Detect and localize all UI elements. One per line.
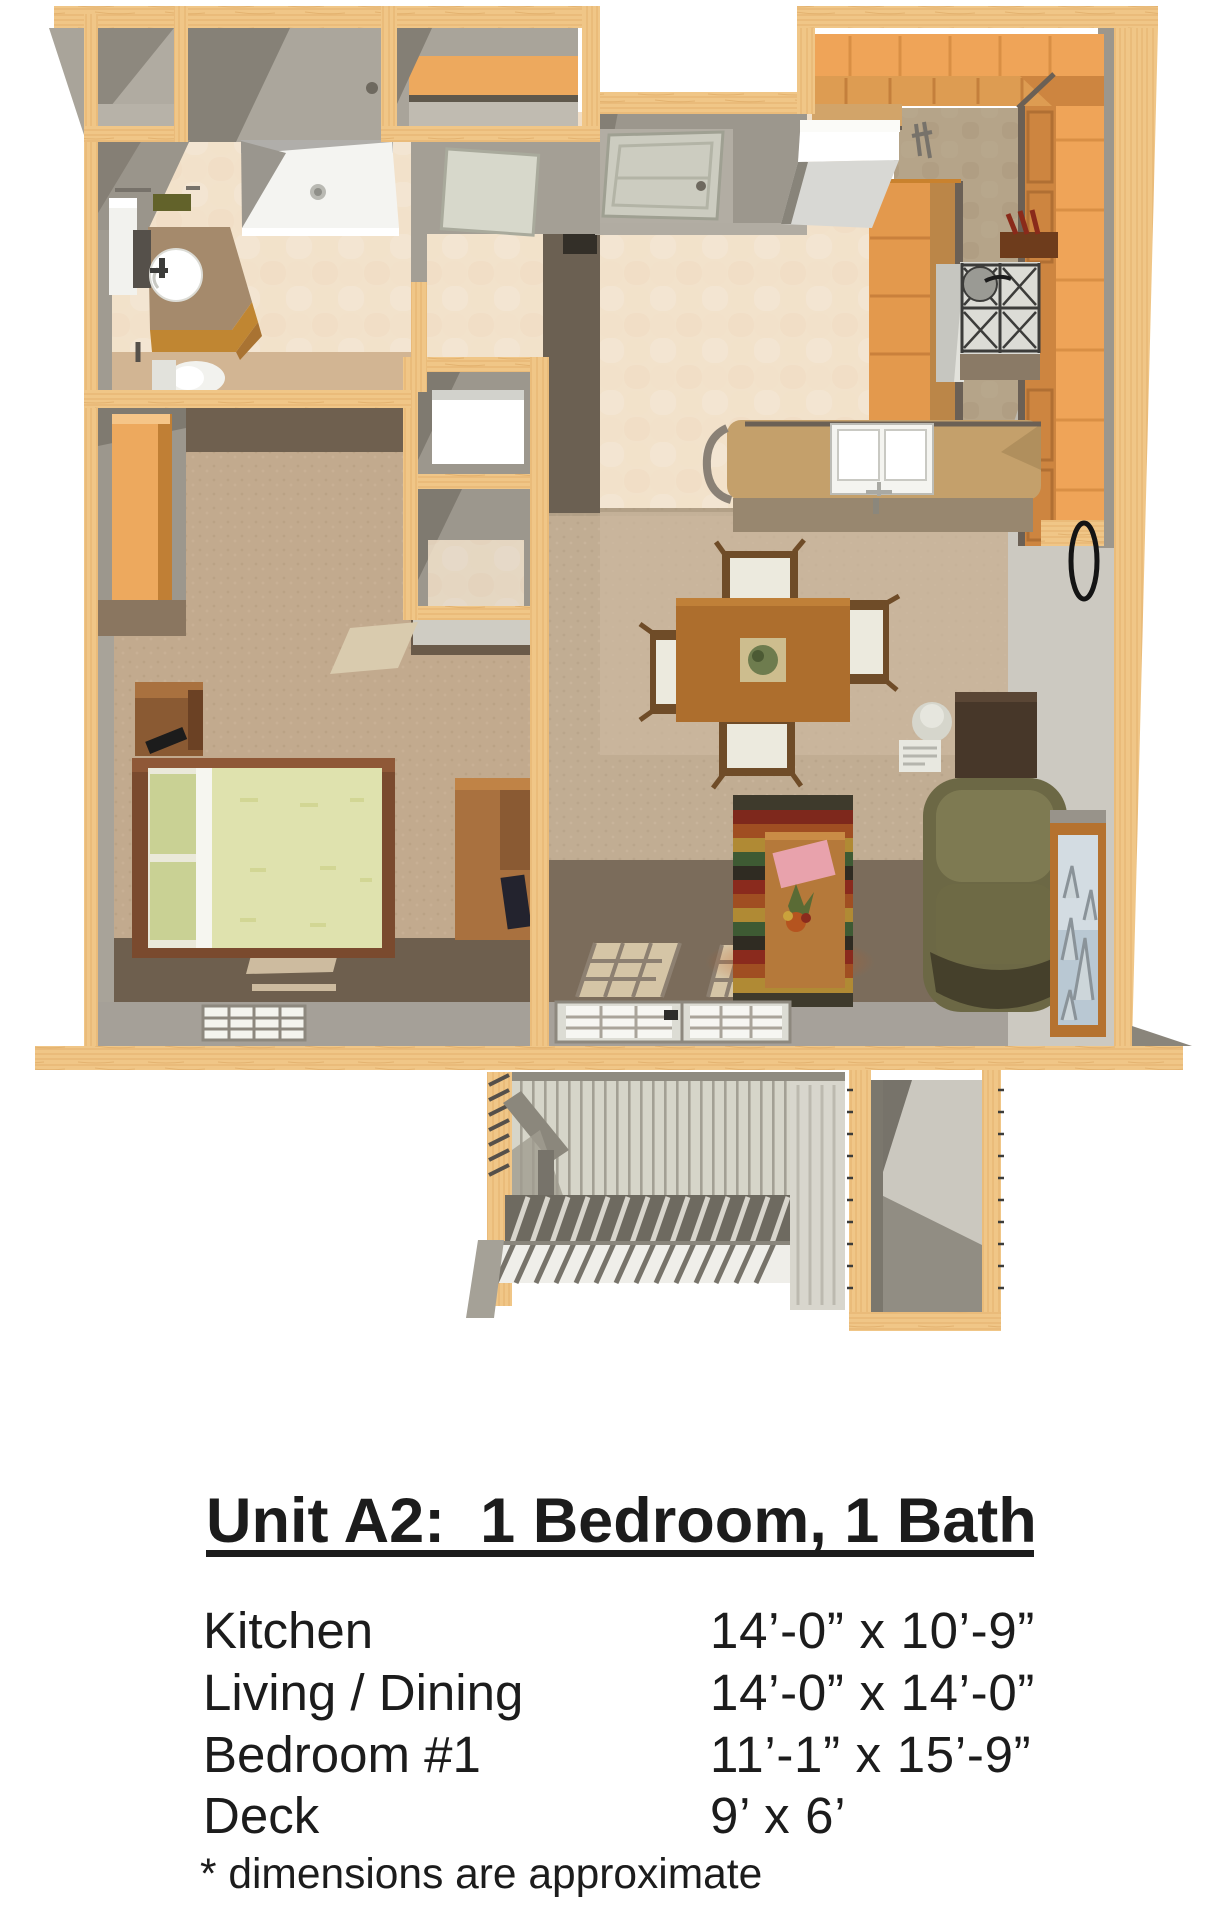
svg-text:Living / Dining: Living / Dining: [203, 1664, 523, 1721]
svg-text:Kitchen: Kitchen: [203, 1602, 373, 1659]
svg-text:9’ x 6’: 9’ x 6’: [710, 1787, 846, 1844]
svg-text:Deck: Deck: [203, 1787, 320, 1844]
svg-text:11’-1” x 15’-9”: 11’-1” x 15’-9”: [710, 1726, 1031, 1783]
svg-text:Unit A2: 1 Bedroom, 1 Bath: Unit A2: 1 Bedroom, 1 Bath: [206, 1486, 1037, 1556]
svg-text:* dimensions are approximate: * dimensions are approximate: [200, 1851, 762, 1898]
svg-text:14’-0” x 14’-0”: 14’-0” x 14’-0”: [710, 1664, 1035, 1721]
svg-text:Bedroom #1: Bedroom #1: [203, 1726, 481, 1783]
svg-text:14’-0” x 10’-9”: 14’-0” x 10’-9”: [710, 1602, 1035, 1659]
